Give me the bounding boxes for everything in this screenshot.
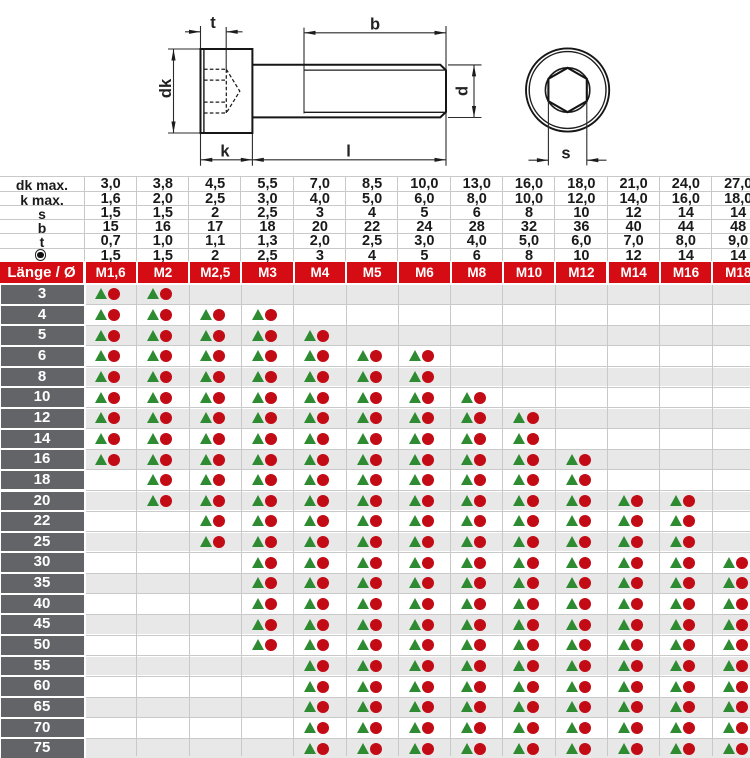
svg-text:b: b	[370, 16, 380, 34]
svg-text:t: t	[210, 14, 216, 32]
svg-text:dk: dk	[157, 78, 175, 98]
svg-text:s: s	[561, 145, 570, 163]
svg-text:k: k	[220, 143, 230, 161]
svg-text:l: l	[346, 143, 351, 161]
svg-text:d: d	[454, 86, 472, 96]
